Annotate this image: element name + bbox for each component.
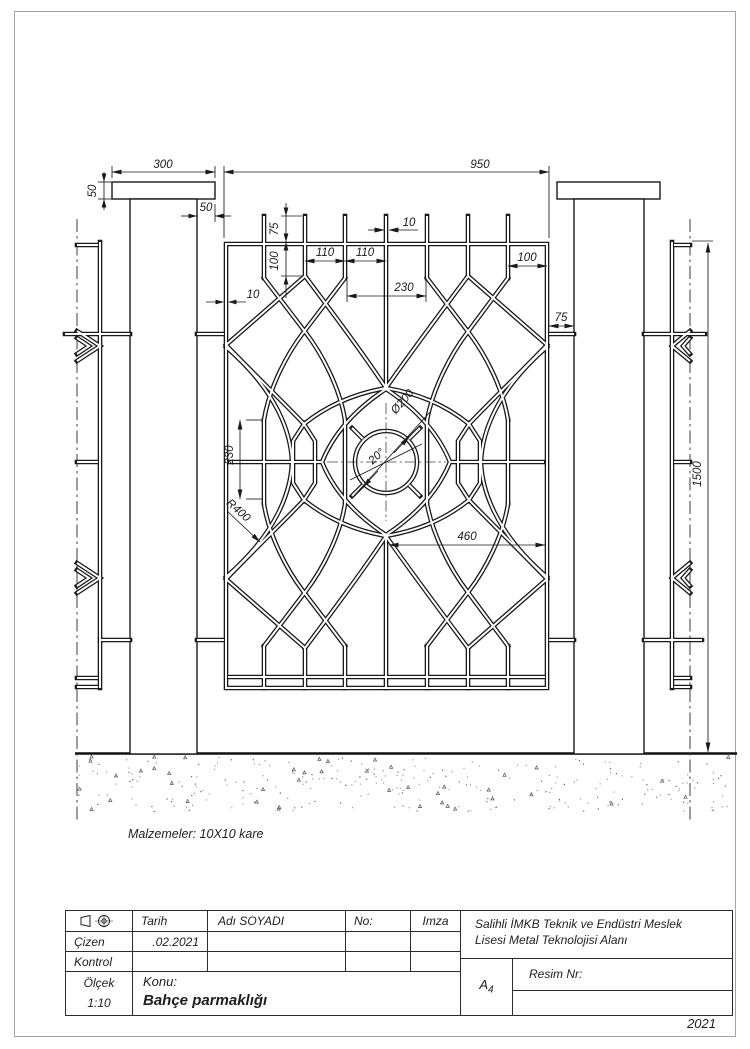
school-cell: Salihli İMKB Teknik ve Endüstri Meslek L… <box>461 911 732 959</box>
technical-drawing: 300 950 50 50 75 100 10 110 110 100 230 … <box>0 0 750 900</box>
dim-cap-height: 50 <box>87 184 99 197</box>
school-line2: Lisesi Metal Teknolojisi Alanı <box>475 933 732 947</box>
label-imza: Imza <box>411 911 461 932</box>
label-kontrol: Kontrol <box>66 952 133 972</box>
empty-cell <box>133 952 208 972</box>
dim-bar-stub: 100 <box>269 251 281 271</box>
school-line1: Salihli İMKB Teknik ve Endüstri Meslek <box>475 917 732 931</box>
empty-cell <box>208 932 346 952</box>
dim-edge-margin: 100 <box>517 252 537 264</box>
ground-hatch <box>78 755 730 812</box>
dim-bar-gap-b: 110 <box>356 247 375 259</box>
materials-note: Malzemeler: 10X10 kare <box>128 827 264 841</box>
dim-frame-tube: 10 <box>247 289 260 301</box>
label-tarih: Tarih <box>133 911 208 932</box>
dim-spoke-angle: 20° <box>366 446 388 467</box>
dim-fence-height: 1500 <box>692 461 704 487</box>
empty-cell <box>411 932 461 952</box>
scale-cell: Ölçek 1:10 <box>66 972 133 1015</box>
dim-bar-gap-a: 110 <box>316 247 335 259</box>
label-no: No: <box>346 911 411 932</box>
left-post <box>130 199 197 754</box>
subject-cell: Konu: Bahçe parmaklığı <box>133 972 461 1015</box>
empty-cell <box>411 952 461 972</box>
dim-half-span: 460 <box>457 531 477 543</box>
empty-cell <box>346 932 411 952</box>
drawing-number-cell: Resim Nr: <box>513 959 732 1015</box>
paper-size-cell: A4 <box>461 959 513 1015</box>
dim-bar-width: 10 <box>403 217 416 229</box>
empty-cell <box>346 952 411 972</box>
dim-mid-segment: 230 <box>224 445 236 466</box>
dim-post-gap: 75 <box>555 312 568 324</box>
dim-panel-width: 950 <box>470 159 490 171</box>
paper-size: A <box>479 977 488 992</box>
value-subject: Bahçe parmaklığı <box>143 992 460 1009</box>
dim-cap-width: 300 <box>153 159 173 171</box>
label-konu: Konu: <box>143 974 460 989</box>
label-resim-nr: Resim Nr: <box>513 959 732 991</box>
label-cizen: Çizen <box>66 932 133 952</box>
drawing-sheet: 300 950 50 50 75 100 10 110 110 100 230 … <box>0 0 750 1049</box>
left-post-cap <box>112 182 215 199</box>
dim-spike-height: 75 <box>269 222 281 235</box>
value-date: .02.2021 <box>133 932 208 952</box>
label-olcek: Ölçek <box>66 976 132 990</box>
projection-symbol-cell <box>66 911 133 932</box>
dim-post-offset: 50 <box>200 202 213 214</box>
dim-center-span: 230 <box>393 282 414 294</box>
right-post-cap <box>557 182 660 199</box>
projection-symbol-icon <box>77 913 121 929</box>
label-adi-soyadi: Adı SOYADI <box>208 911 346 932</box>
value-scale: 1:10 <box>66 996 132 1010</box>
title-block: Tarih Adı SOYADI No: Imza Çizen .02.2021… <box>65 910 733 1016</box>
right-post <box>574 199 644 754</box>
paper-size-sub: 4 <box>488 985 494 996</box>
year-note: 2021 <box>600 1016 716 1031</box>
empty-cell <box>208 952 346 972</box>
